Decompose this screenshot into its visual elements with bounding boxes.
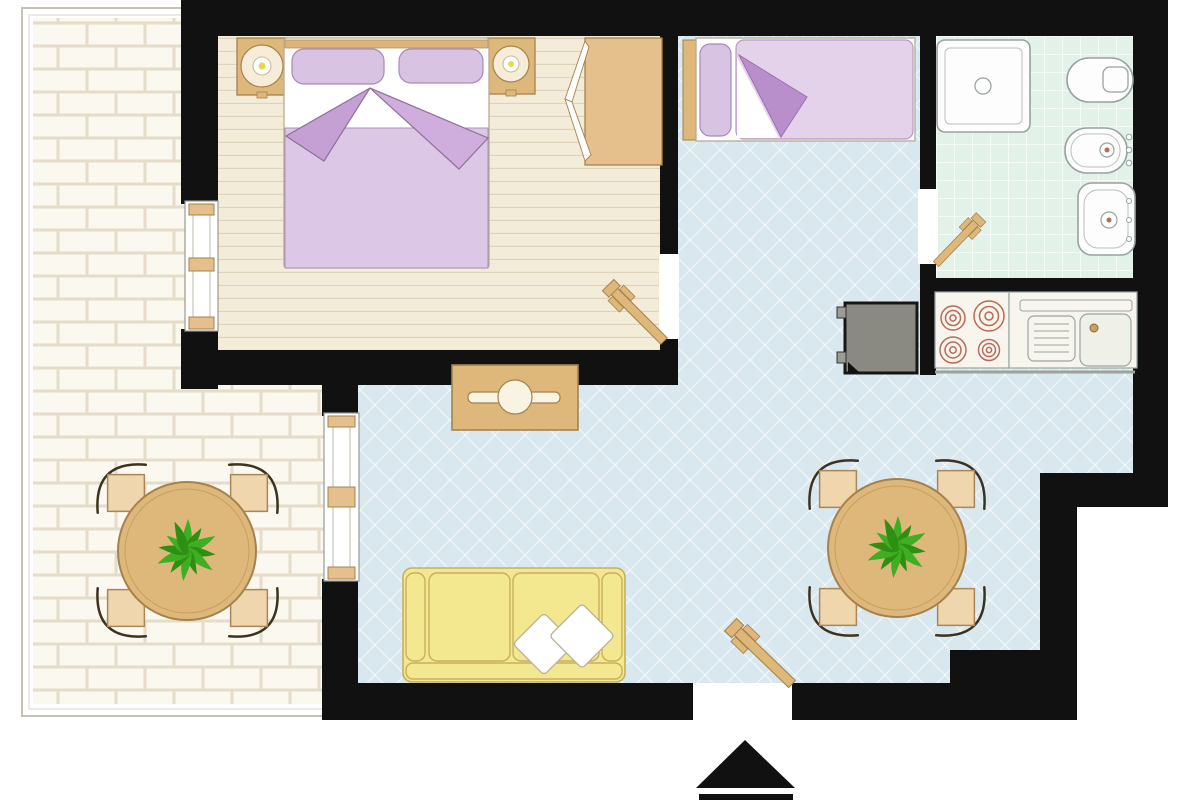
toilet — [1067, 58, 1133, 102]
sofa — [403, 568, 625, 682]
single-bed-headboard — [683, 40, 696, 140]
pillow — [292, 49, 384, 84]
bathroom-door-opening — [918, 189, 938, 264]
washbasin — [1078, 183, 1135, 255]
refrigerator — [837, 303, 917, 373]
wall-right — [1133, 0, 1168, 507]
single-bed-nook — [683, 38, 915, 141]
bedroom-window — [185, 201, 218, 331]
wall-bedroom-bottom — [181, 350, 678, 385]
floor-plan-drawing — [0, 0, 1200, 800]
entrance-door-opening — [694, 683, 792, 720]
nightstand-right — [487, 38, 535, 96]
shower-tray — [937, 40, 1030, 132]
dining-table — [828, 479, 966, 617]
wall-left-upper — [181, 36, 218, 204]
wall-living-left-lower — [322, 579, 358, 720]
wall-bathroom-left-upper — [920, 36, 936, 189]
kitchen-counter — [1009, 292, 1137, 368]
toilet-cistern — [1103, 67, 1128, 92]
wall-top — [181, 0, 1168, 36]
wall-corner-block — [950, 650, 1077, 720]
stove — [935, 292, 1009, 368]
kitchen-sink — [1080, 314, 1131, 366]
wall-living-left-upper — [322, 378, 358, 416]
wall-bedroom-right-upper — [660, 36, 678, 254]
entrance-arrow-icon — [696, 740, 795, 800]
pillow — [399, 49, 483, 83]
terrace-table — [118, 482, 256, 620]
desk-stool — [498, 380, 532, 414]
wall-bottom-right — [792, 683, 952, 720]
terrace-french-window — [324, 413, 359, 581]
nightstand-left — [237, 38, 287, 98]
wall-bottom-left — [358, 683, 693, 720]
double-bed — [284, 38, 489, 268]
bidet — [1065, 128, 1132, 173]
bedroom-door-opening — [659, 254, 679, 339]
pillow — [700, 44, 731, 136]
shower-drain — [975, 78, 991, 94]
console-desk — [452, 365, 578, 430]
wall-bedroom-right-lower — [660, 339, 678, 385]
kitchen-furniture — [837, 292, 1137, 373]
floor-plan-canvas — [0, 0, 1200, 800]
headboard — [285, 40, 488, 48]
faucet-icon — [1090, 324, 1098, 332]
